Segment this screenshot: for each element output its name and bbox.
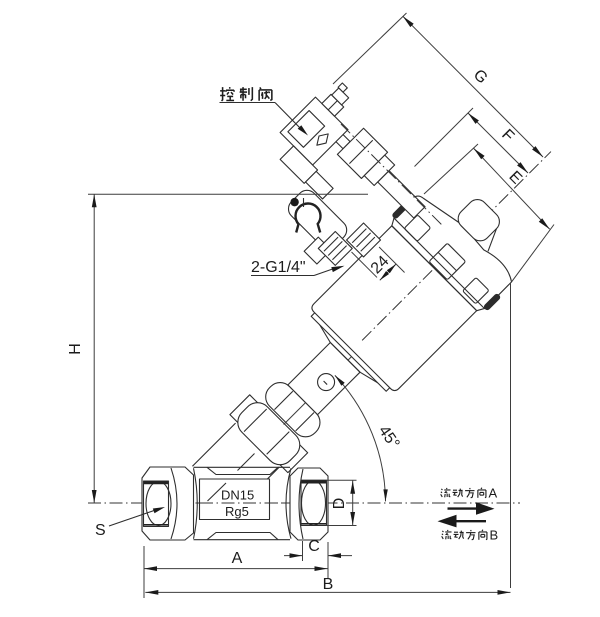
svg-text:B: B xyxy=(323,576,334,593)
svg-text:DN15: DN15 xyxy=(221,488,254,503)
svg-text:Rg5: Rg5 xyxy=(225,504,249,519)
svg-text:A: A xyxy=(232,550,243,567)
svg-text:D: D xyxy=(331,498,348,510)
svg-text:2-G1/4": 2-G1/4" xyxy=(251,259,306,276)
svg-text:H: H xyxy=(67,343,84,355)
svg-text:B: B xyxy=(490,528,499,543)
svg-text:C: C xyxy=(308,538,320,555)
svg-text:A: A xyxy=(489,486,498,501)
svg-text:S: S xyxy=(95,522,106,539)
